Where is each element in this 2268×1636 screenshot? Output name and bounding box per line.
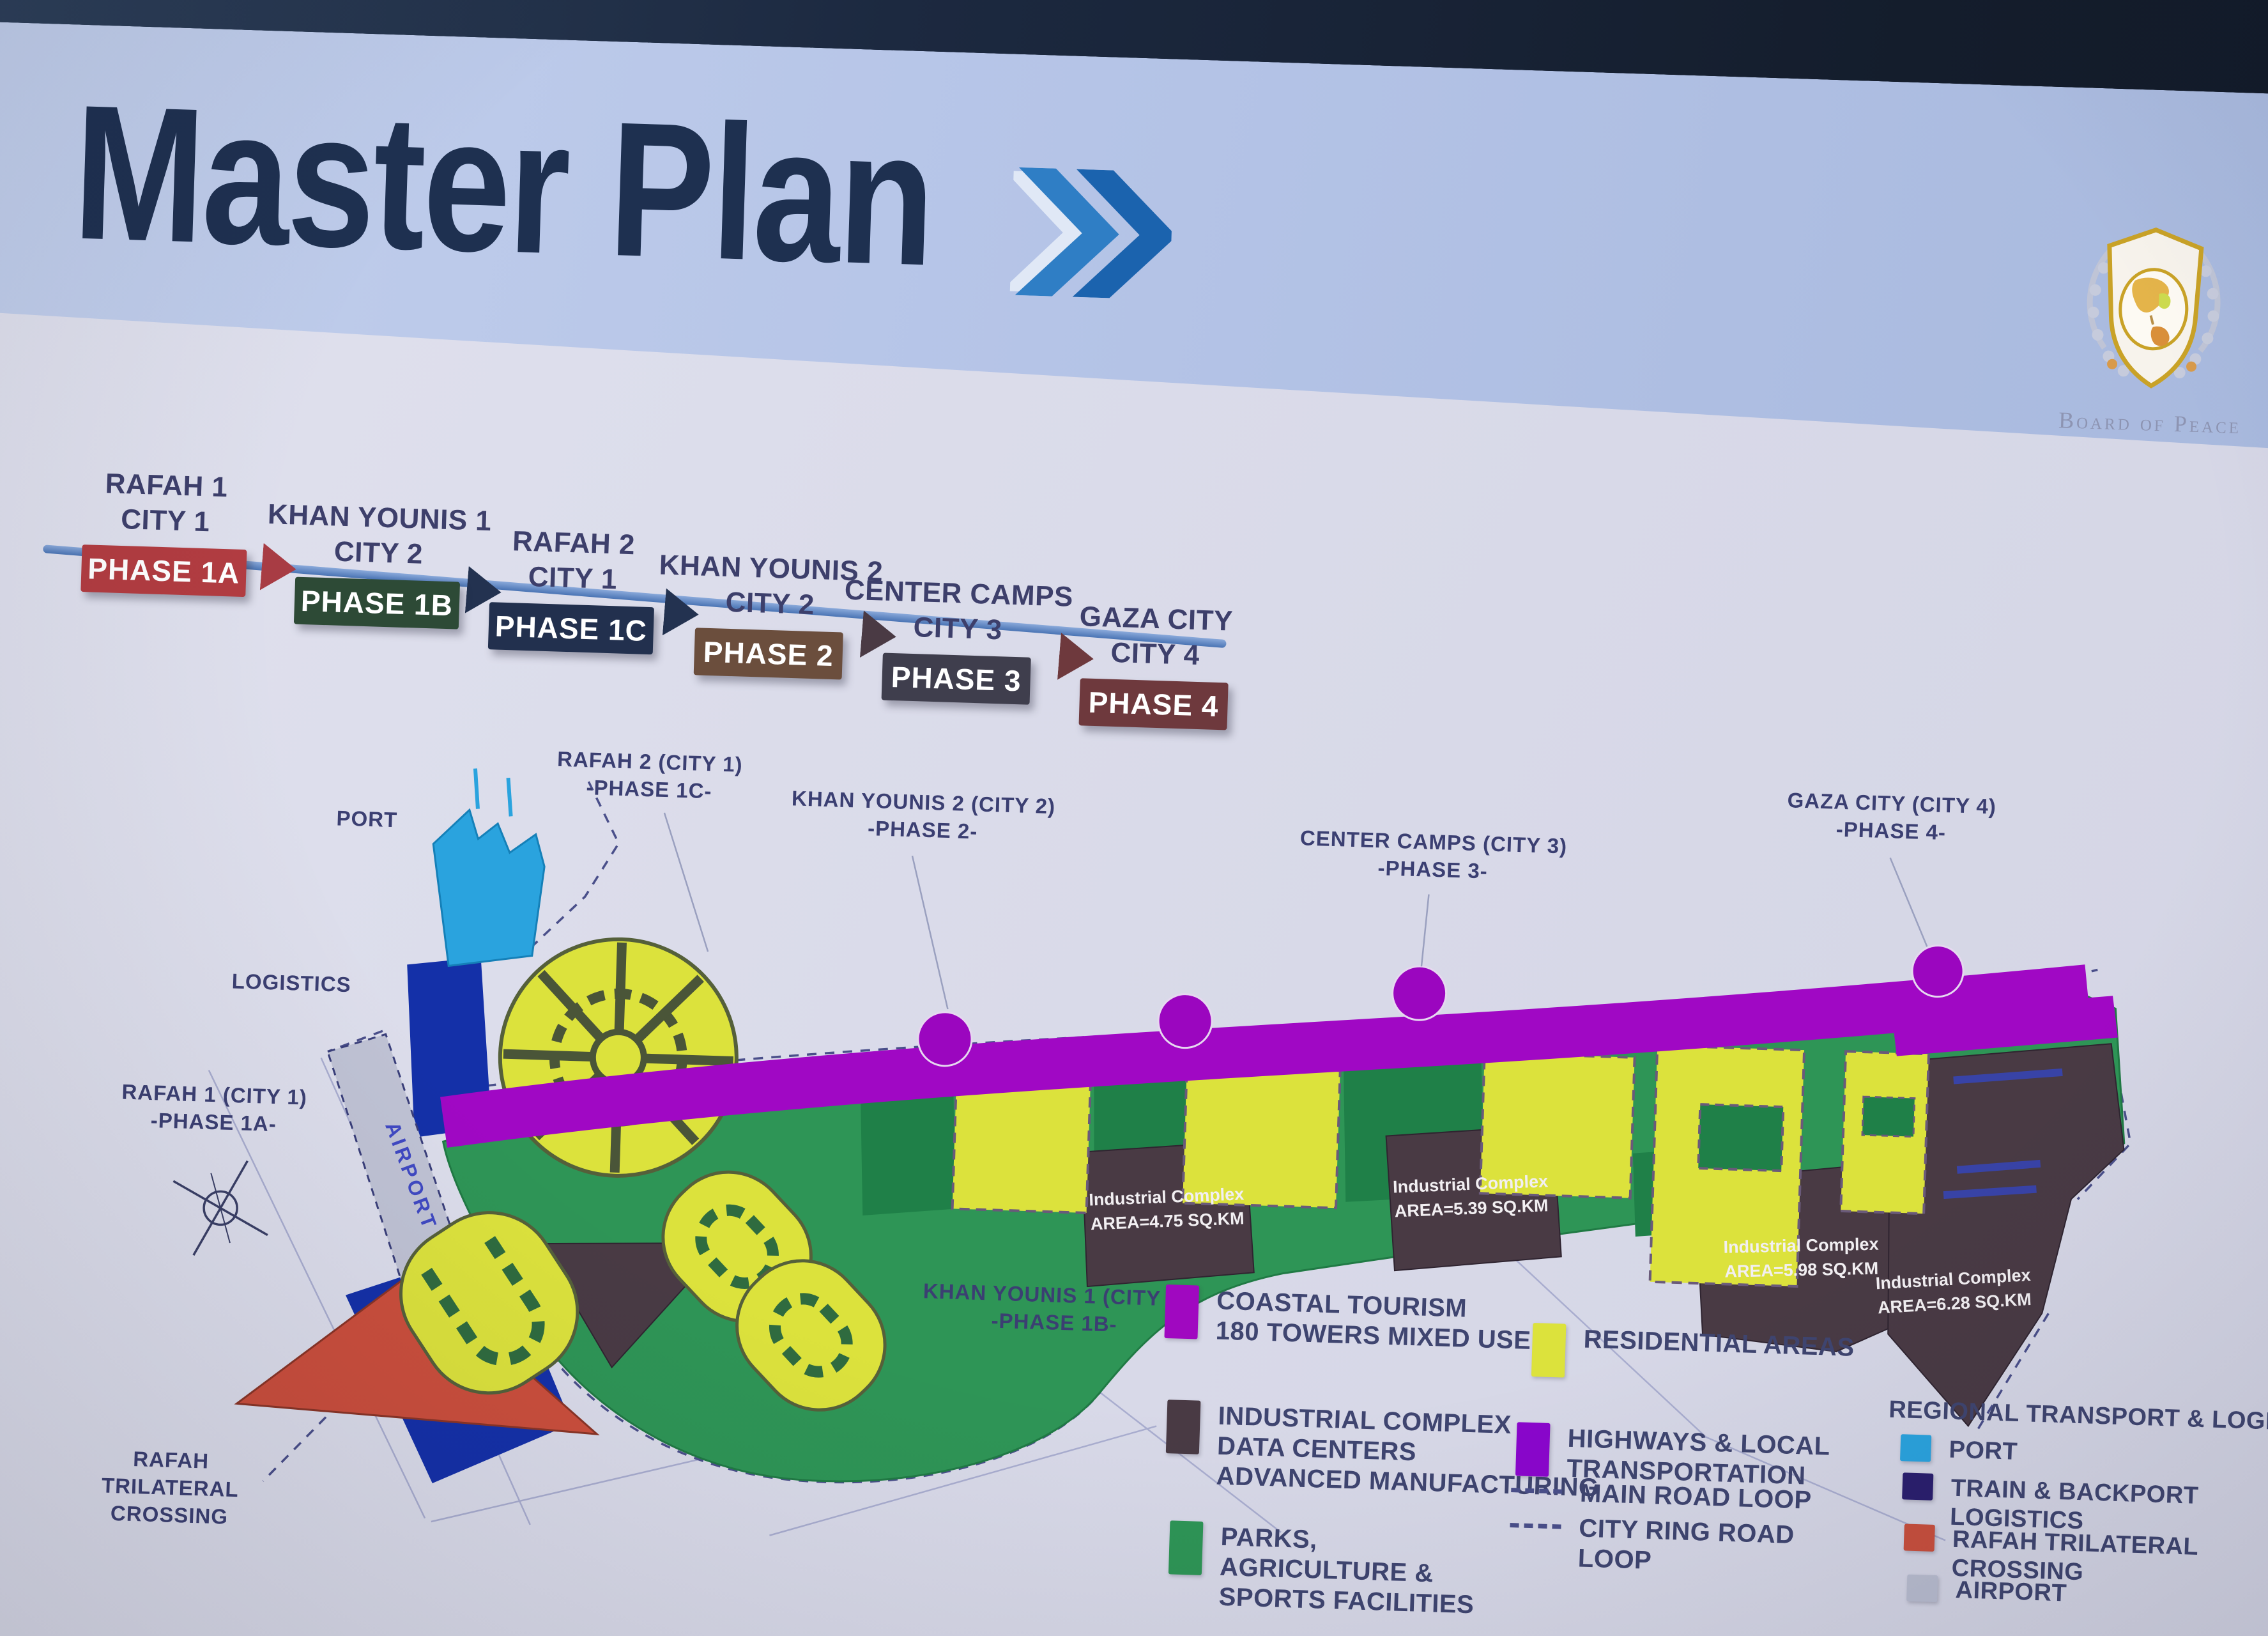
phase-badge: PHASE 3	[882, 653, 1031, 705]
parks-swatch	[1168, 1520, 1204, 1575]
timeline-phase-1a: RAFAH 1 CITY 1 PHASE 1A	[48, 465, 282, 598]
phase-badge: PHASE 1B	[294, 577, 460, 629]
double-chevron-right-icon	[1009, 167, 1173, 304]
map-label-rafah1: RAFAH 1 (CITY 1) -PHASE 1A-	[121, 1079, 308, 1139]
ring-road-dash-icon	[1510, 1523, 1561, 1529]
board-of-peace-logo: Board of Peace	[2054, 209, 2253, 439]
map-label-rafah-crossing: RAFAH TRILATERAL CROSSING	[100, 1444, 240, 1531]
port-swatch	[1900, 1434, 1931, 1462]
phase-badge: PHASE 1A	[80, 544, 247, 597]
phase-city: CITY 1	[50, 500, 281, 542]
compass-icon	[145, 1132, 296, 1284]
port-zone	[429, 768, 548, 969]
phase-location: CENTER CAMPS	[843, 573, 1075, 615]
coastal-swatch	[1164, 1285, 1199, 1339]
legend-parks: COASTAL TOURISM PARKS, AGRICULTURE & SPO…	[1167, 1520, 1476, 1621]
main-road-dash-icon	[1511, 1488, 1562, 1494]
phase-badge: PHASE 2	[694, 628, 843, 679]
map-label-khan-younis2: KHAN YOUNIS 2 (CITY 2) -PHASE 2-	[790, 785, 1056, 848]
industrial-swatch	[1166, 1400, 1201, 1455]
airport-swatch	[1906, 1575, 1938, 1602]
legend-port: PORT	[1900, 1434, 2018, 1467]
globe-shield-icon	[2055, 209, 2253, 413]
map-label-center-camps: CENTER CAMPS (CITY 3) -PHASE 3-	[1299, 824, 1568, 888]
legend-residential: RESIDENTIAL AREAS	[1531, 1323, 1855, 1387]
map-label-rafah2: RAFAH 2 (CITY 1) -PHASE 1C-	[556, 746, 743, 806]
legend-airport: AIRPORT	[1906, 1575, 2067, 1609]
slide: Master Plan Board of Peace	[0, 0, 2268, 1636]
industrial-name: Industrial Complex	[1723, 1235, 1879, 1257]
slide-photo: Master Plan Board of Peace	[0, 0, 2268, 1636]
timeline-phase-4: GAZA CITY CITY 4 PHASE 4	[1038, 598, 1272, 731]
legend-ring-road-loop: CITY RING ROAD LOOP	[1508, 1511, 1795, 1580]
map-label-khan-younis1: KHAN YOUNIS 1 (CITY 2) -PHASE 1B-	[922, 1277, 1188, 1341]
map-label-gaza-city: GAZA CITY (CITY 4) -PHASE 4-	[1786, 787, 1997, 848]
residential-swatch	[1531, 1323, 1567, 1378]
phase-timeline: RAFAH 1 CITY 1 PHASE 1A KHAN YOUNIS 1 CI…	[26, 0, 2268, 38]
phase-city: CITY 4	[1039, 633, 1271, 675]
phase-city: CITY 1	[457, 557, 689, 599]
industrial-area: AREA=5.98 SQ.KM	[1724, 1259, 1878, 1281]
legend-coastal-tourism: COASTAL TOURISM 180 TOWERS MIXED USED	[1164, 1285, 1551, 1357]
phase-city: CITY 3	[842, 608, 1073, 650]
phase-badge: PHASE 4	[1079, 678, 1229, 730]
phase-badge: PHASE 1C	[488, 602, 654, 654]
train-swatch	[1902, 1472, 1933, 1500]
map-label-port: PORT	[336, 805, 398, 834]
highways-swatch	[1515, 1422, 1551, 1477]
map-label-logistics: LOGISTICS	[231, 968, 351, 999]
rafah-crossing-swatch	[1904, 1524, 1935, 1551]
page-title: Master Plan	[71, 61, 937, 309]
